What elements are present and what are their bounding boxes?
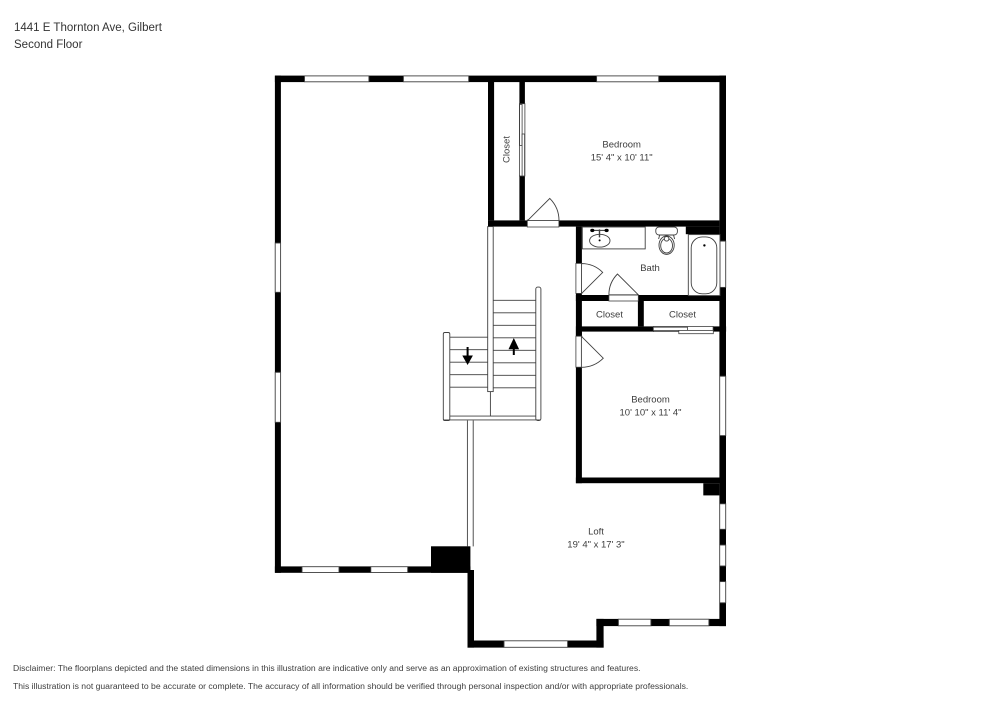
svg-text:Closet: Closet	[596, 310, 623, 321]
svg-text:Bedroom: Bedroom	[602, 140, 641, 151]
svg-text:Second Floor: Second Floor	[14, 39, 83, 51]
svg-text:10' 10" x 11' 4": 10' 10" x 11' 4"	[620, 407, 682, 418]
svg-text:Closet: Closet	[502, 136, 513, 163]
svg-text:19' 4" x 17' 3": 19' 4" x 17' 3"	[567, 540, 624, 551]
svg-text:Disclaimer: The floorplans dep: Disclaimer: The floorplans depicted and …	[13, 663, 641, 673]
svg-text:This illustration is not guara: This illustration is not guaranteed to b…	[13, 681, 688, 691]
svg-text:Bedroom: Bedroom	[631, 395, 670, 406]
svg-text:15' 4" x 10' 11": 15' 4" x 10' 11"	[591, 152, 653, 163]
svg-text:Bath: Bath	[640, 263, 660, 274]
svg-text:1441 E Thornton Ave, Gilbert: 1441 E Thornton Ave, Gilbert	[14, 22, 163, 34]
svg-text:Closet: Closet	[669, 310, 696, 321]
svg-text:Loft: Loft	[588, 527, 604, 538]
